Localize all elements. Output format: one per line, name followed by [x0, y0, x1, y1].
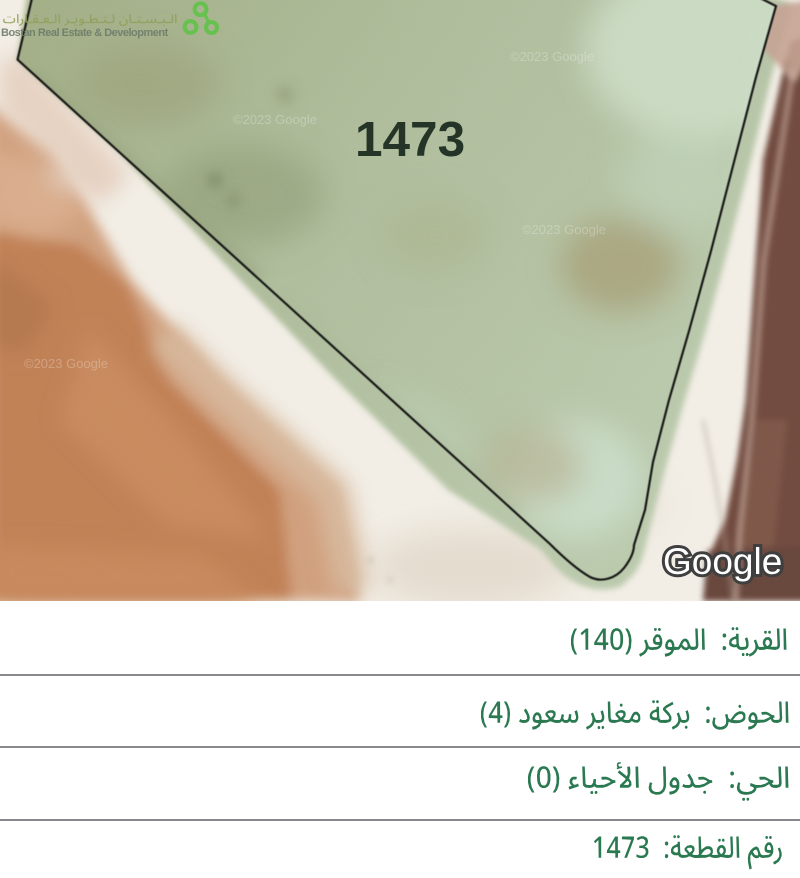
svg-text:1473: 1473: [355, 112, 465, 167]
svg-text:Google: Google: [663, 541, 782, 582]
